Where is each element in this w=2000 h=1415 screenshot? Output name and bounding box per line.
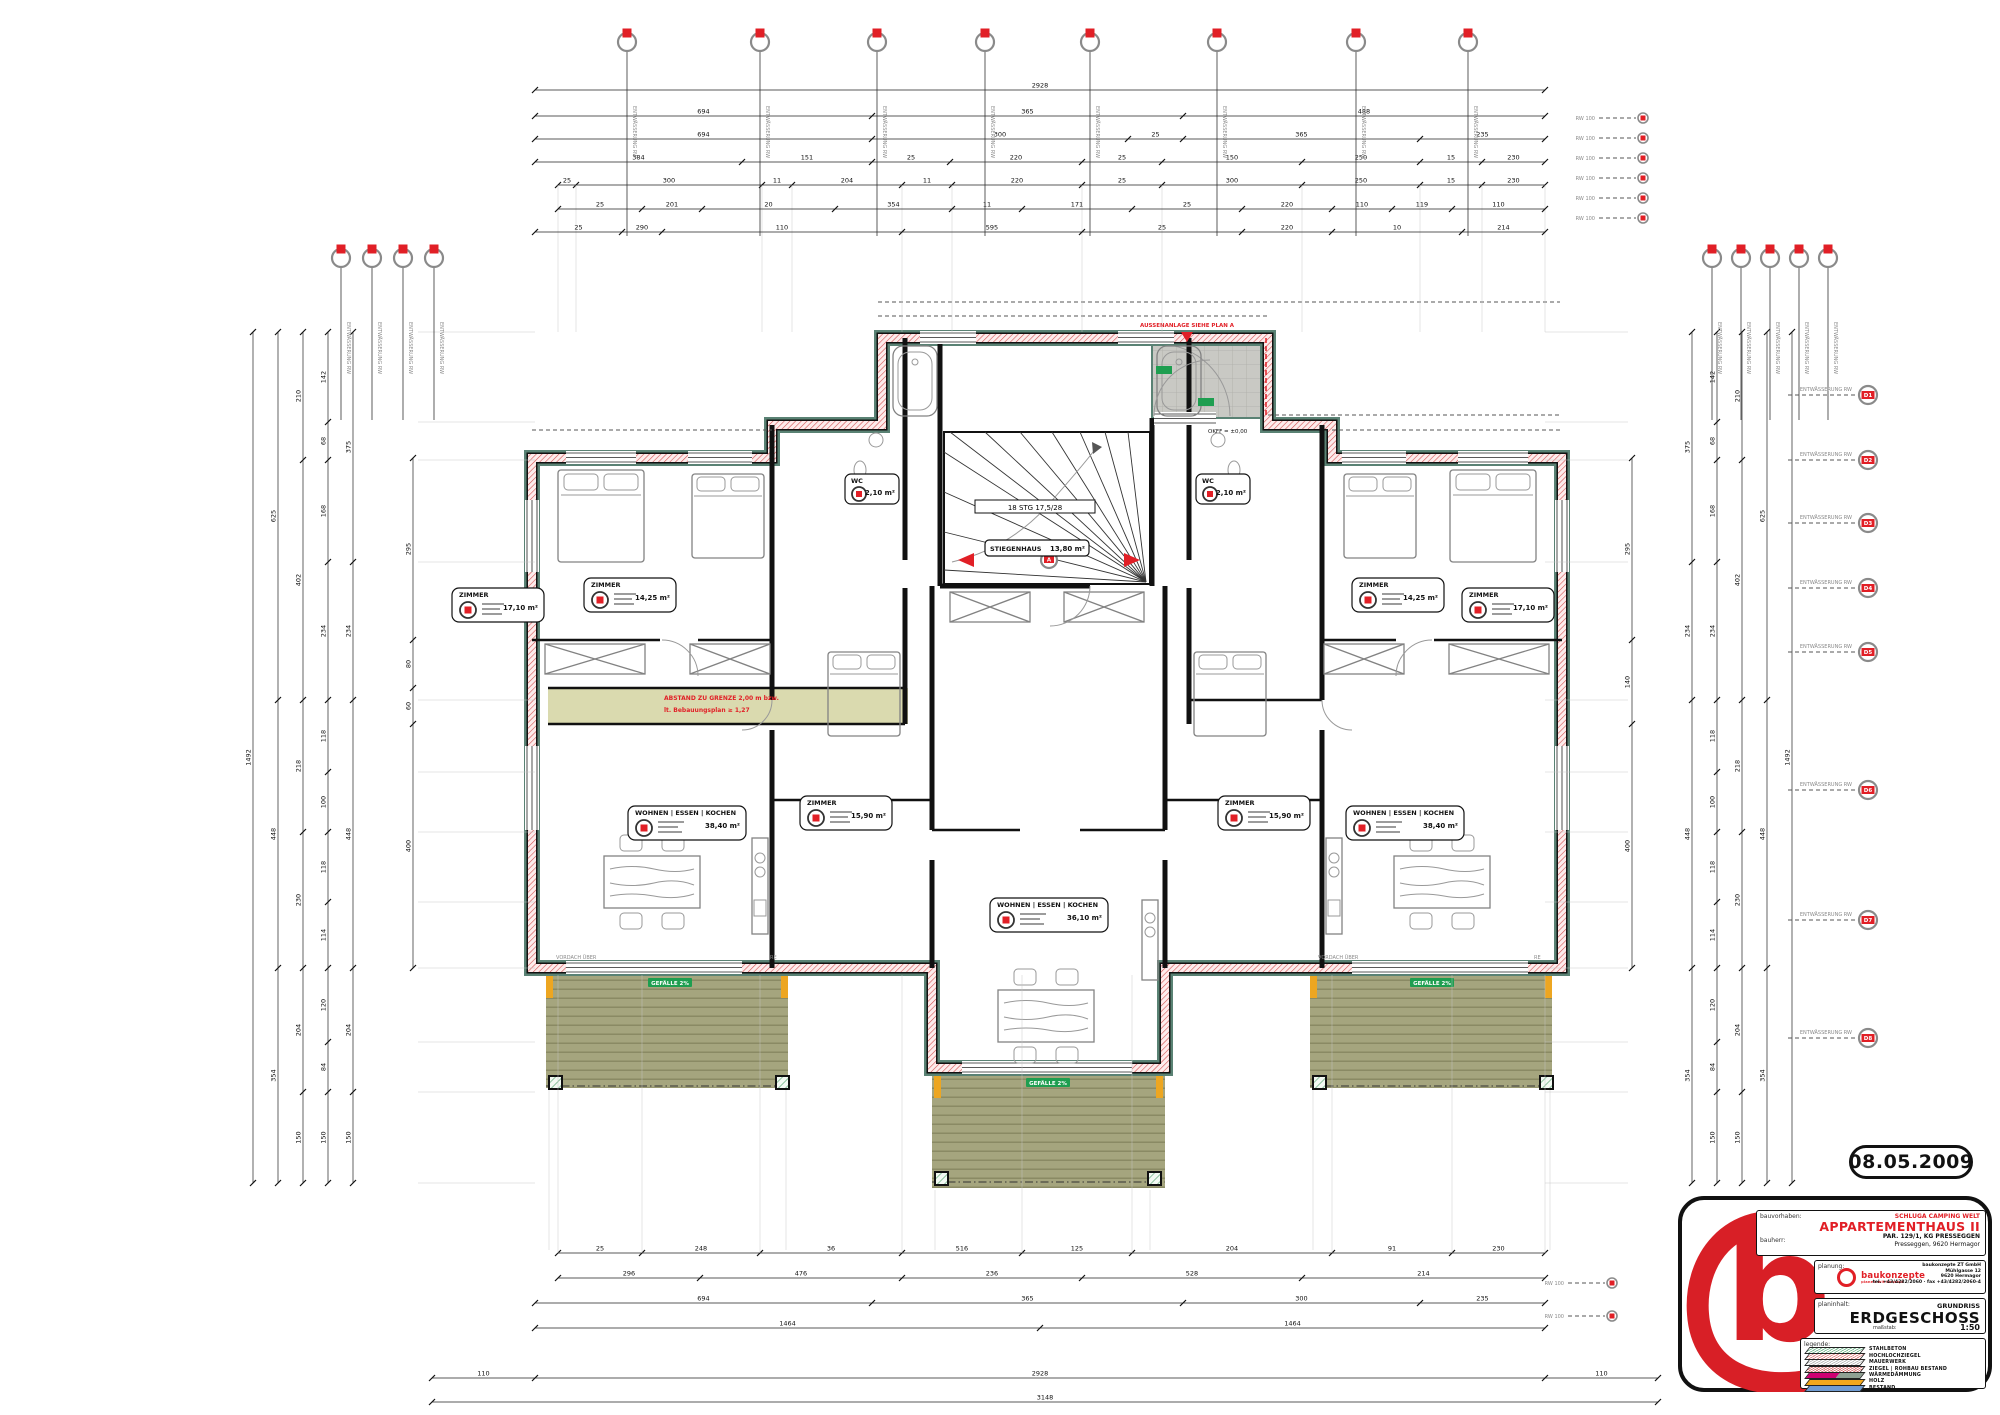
terrace-post: [549, 1076, 562, 1089]
svg-text:ENTWÄSSERUNG RW: ENTWÄSSERUNG RW: [345, 322, 352, 374]
svg-text:204: 204: [295, 1024, 303, 1036]
svg-text:15,90 m²: 15,90 m²: [851, 812, 886, 820]
legend-swatch-waermedaemmung: [1804, 1372, 1865, 1379]
svg-text:1492: 1492: [1784, 749, 1792, 766]
svg-text:2928: 2928: [1032, 82, 1049, 90]
svg-text:230: 230: [1507, 177, 1519, 185]
svg-text:400: 400: [405, 840, 413, 852]
svg-text:1464: 1464: [779, 1320, 796, 1328]
svg-text:ENTWÄSSERUNG RW: ENTWÄSSERUNG RW: [1221, 106, 1228, 158]
slope-chip: GEFÄLLE 2%: [1410, 978, 1454, 987]
highlight-zone: [548, 688, 908, 724]
svg-text:ZIMMER: ZIMMER: [1469, 591, 1499, 599]
svg-text:ENTWÄSSERUNG RW: ENTWÄSSERUNG RW: [881, 106, 888, 158]
svg-text:625: 625: [270, 510, 278, 522]
svg-text:296: 296: [623, 1270, 635, 1278]
svg-text:ENTWÄSSERUNG RW: ENTWÄSSERUNG RW: [1803, 322, 1810, 374]
svg-text:1492: 1492: [245, 749, 253, 766]
svg-text:100: 100: [320, 796, 328, 808]
svg-text:234: 234: [320, 625, 328, 637]
legend-row: HOLZ: [1807, 1379, 1981, 1385]
room-stamp: ZIMMER 17,10 m²: [452, 588, 544, 622]
svg-text:236: 236: [986, 1270, 998, 1278]
svg-text:118: 118: [1709, 730, 1717, 742]
vordach-label: VORDACH ÜBER: [556, 954, 597, 961]
legend-swatch-bestand: [1804, 1385, 1865, 1392]
svg-text:GEFÄLLE 2%: GEFÄLLE 2%: [651, 980, 689, 987]
svg-text:ZIMMER: ZIMMER: [591, 581, 621, 589]
svg-text:210: 210: [1734, 390, 1742, 402]
svg-text:295: 295: [405, 543, 413, 555]
firm-address: baukonzepte ZT GmbH Mühlgasse 12 9620 He…: [1873, 1263, 1981, 1285]
svg-text:ENTWÄSSERUNG RW: ENTWÄSSERUNG RW: [1800, 386, 1852, 393]
svg-text:295: 295: [1624, 543, 1632, 555]
svg-text:151: 151: [801, 154, 813, 162]
svg-text:110: 110: [1492, 201, 1504, 209]
svg-text:230: 230: [1507, 154, 1519, 162]
legend-row: WÄRMEDÄMMUNG: [1807, 1373, 1981, 1379]
svg-text:110: 110: [1595, 1370, 1607, 1378]
stair-run-label: 18 STG 17,5/28: [1008, 504, 1062, 512]
svg-text:14,25 m²: 14,25 m²: [1403, 594, 1438, 602]
svg-text:365: 365: [1295, 131, 1307, 139]
bauvorhaben-label: bauvorhaben:: [1760, 1213, 1802, 1220]
svg-text:204: 204: [1226, 1245, 1238, 1253]
svg-text:694: 694: [697, 131, 709, 139]
svg-text:WOHNEN | ESSEN | KOCHEN: WOHNEN | ESSEN | KOCHEN: [635, 809, 736, 818]
svg-text:68: 68: [1709, 437, 1717, 445]
svg-text:375: 375: [1684, 441, 1692, 453]
svg-text:91: 91: [1388, 1245, 1396, 1253]
svg-text:25: 25: [1118, 154, 1126, 162]
svg-text:36: 36: [827, 1245, 835, 1253]
svg-text:528: 528: [1186, 1270, 1198, 1278]
terrace-post: [1540, 1076, 1553, 1089]
svg-text:119: 119: [1416, 201, 1428, 209]
svg-text:ENTWÄSSERUNG RW: ENTWÄSSERUNG RW: [438, 322, 445, 374]
svg-text:ZIMMER: ZIMMER: [807, 799, 837, 807]
svg-text:WC: WC: [1202, 477, 1214, 485]
stair-detail-marker: A: [1047, 558, 1052, 564]
svg-text:25: 25: [1151, 131, 1159, 139]
room-stamp: ZIMMER 17,10 m²: [1462, 588, 1554, 622]
svg-text:365: 365: [1021, 1295, 1033, 1303]
svg-text:354: 354: [1684, 1069, 1692, 1081]
staircase: 18 STG 17,5/28 A: [944, 432, 1150, 584]
svg-text:17,10 m²: 17,10 m²: [503, 604, 538, 612]
re-label: RE: [1534, 955, 1541, 961]
svg-text:11: 11: [923, 177, 931, 185]
svg-text:ENTWÄSSERUNG RW: ENTWÄSSERUNG RW: [631, 106, 638, 158]
svg-text:D8: D8: [1864, 1036, 1873, 1042]
svg-text:ENTWÄSSERUNG RW: ENTWÄSSERUNG RW: [1800, 781, 1852, 788]
terrace-post: [935, 1172, 948, 1185]
svg-text:15,90 m²: 15,90 m²: [1269, 812, 1304, 820]
svg-text:11: 11: [983, 201, 991, 209]
scale-value: 1:50: [1960, 1323, 1980, 1332]
room-stamp: WC 2,10 m²: [845, 474, 899, 504]
svg-text:218: 218: [295, 760, 303, 772]
terrace-post: [1313, 1076, 1326, 1089]
svg-text:110: 110: [1356, 201, 1368, 209]
svg-text:448: 448: [345, 828, 353, 840]
svg-text:D6: D6: [1864, 788, 1873, 794]
svg-text:235: 235: [1476, 1295, 1488, 1303]
svg-text:1464: 1464: [1284, 1320, 1301, 1328]
svg-text:RW 100: RW 100: [1576, 176, 1595, 182]
svg-text:D4: D4: [1864, 586, 1873, 592]
level-mark: OKFF = ±0,00: [1208, 429, 1248, 435]
svg-text:214: 214: [1417, 1270, 1429, 1278]
svg-text:25: 25: [596, 201, 604, 209]
svg-text:118: 118: [320, 861, 328, 873]
svg-text:168: 168: [320, 505, 328, 517]
svg-text:2928: 2928: [1032, 1370, 1049, 1378]
svg-text:230: 230: [295, 894, 303, 906]
svg-text:234: 234: [1684, 625, 1692, 637]
svg-text:300: 300: [1226, 177, 1238, 185]
svg-text:118: 118: [320, 730, 328, 742]
svg-text:448: 448: [270, 828, 278, 840]
svg-text:GEFÄLLE 2%: GEFÄLLE 2%: [1029, 1080, 1067, 1087]
svg-text:125: 125: [1071, 1245, 1083, 1253]
svg-text:2,10 m²: 2,10 m²: [1216, 489, 1246, 497]
svg-text:402: 402: [295, 574, 303, 586]
svg-text:15: 15: [1447, 154, 1455, 162]
svg-text:120: 120: [320, 999, 328, 1011]
svg-text:38,40 m²: 38,40 m²: [1423, 822, 1458, 830]
svg-text:11: 11: [773, 177, 781, 185]
room-stamp: ZIMMER 15,90 m²: [800, 796, 892, 830]
svg-text:ENTWÄSSERUNG RW: ENTWÄSSERUNG RW: [1800, 451, 1852, 458]
svg-text:150: 150: [1734, 1131, 1742, 1143]
room-stamp: WOHNEN | ESSEN | KOCHEN 38,40 m²: [1346, 806, 1464, 840]
vordach-label: VORDACH ÜBER: [1318, 954, 1359, 961]
svg-text:220: 220: [1281, 224, 1293, 232]
svg-text:17,10 m²: 17,10 m²: [1513, 604, 1548, 612]
svg-text:248: 248: [695, 1245, 707, 1253]
svg-text:84: 84: [320, 1063, 328, 1071]
svg-text:230: 230: [1492, 1245, 1504, 1253]
svg-text:375: 375: [345, 441, 353, 453]
svg-text:204: 204: [345, 1024, 353, 1036]
svg-text:ENTWÄSSERUNG RW: ENTWÄSSERUNG RW: [989, 106, 996, 158]
svg-text:354: 354: [887, 201, 899, 209]
svg-text:448: 448: [1684, 828, 1692, 840]
dimension-chain-right: 1492625448354210402218230204150142681682…: [1545, 329, 1795, 1186]
svg-text:516: 516: [956, 1245, 968, 1253]
svg-text:448: 448: [1759, 828, 1767, 840]
room-stamp: WOHNEN | ESSEN | KOCHEN 38,40 m²: [628, 806, 746, 840]
svg-text:694: 694: [697, 1295, 709, 1303]
svg-text:ENTWÄSSERUNG RW: ENTWÄSSERUNG RW: [407, 322, 414, 374]
terrace-post: [776, 1076, 789, 1089]
project-box: bauvorhaben: bauherr: SCHLUGA CAMPING WE…: [1756, 1210, 1986, 1256]
svg-text:ENTWÄSSERUNG RW: ENTWÄSSERUNG RW: [1745, 322, 1752, 374]
re-label: RE: [770, 955, 777, 961]
svg-text:ZIMMER: ZIMMER: [459, 591, 489, 599]
svg-text:ENTWÄSSERUNG RW: ENTWÄSSERUNG RW: [764, 106, 771, 158]
svg-text:201: 201: [666, 201, 678, 209]
svg-text:120: 120: [1709, 999, 1717, 1011]
svg-text:20: 20: [764, 201, 772, 209]
svg-text:RW 100: RW 100: [1576, 216, 1595, 222]
setback-note-line2: lt. Bebauungsplan ≥ 1,27: [664, 707, 750, 714]
dimension-chain-left: 1492625448354210402218230204150142681682…: [245, 329, 536, 1186]
svg-text:354: 354: [270, 1069, 278, 1081]
svg-text:476: 476: [795, 1270, 807, 1278]
svg-text:290: 290: [636, 224, 648, 232]
legend-row: STAHLBETON: [1807, 1347, 1981, 1353]
svg-text:230: 230: [1734, 894, 1742, 906]
svg-text:WOHNEN | ESSEN | KOCHEN: WOHNEN | ESSEN | KOCHEN: [997, 901, 1098, 910]
project-parcel: PAR. 129/1, KG PRESSEGGEN: [1762, 1233, 1980, 1241]
floor-plan-sheet: 18 STG 17,5/28 A: [0, 0, 2000, 1415]
svg-text:ENTWÄSSERUNG RW: ENTWÄSSERUNG RW: [1800, 1029, 1852, 1036]
drawing-title-box: planinhalt: GRUNDRISS ERDGESCHOSS maßsta…: [1814, 1298, 1986, 1334]
svg-text:300: 300: [1295, 1295, 1307, 1303]
terrace-post: [1148, 1172, 1161, 1185]
svg-text:ENTWÄSSERUNG RW: ENTWÄSSERUNG RW: [1800, 643, 1852, 650]
svg-text:GEFÄLLE 2%: GEFÄLLE 2%: [1413, 980, 1451, 987]
svg-text:218: 218: [1734, 760, 1742, 772]
room-stamp: STIEGENHAUS 13,80 m²: [985, 540, 1089, 556]
svg-text:ENTWÄSSERUNG RW: ENTWÄSSERUNG RW: [1716, 322, 1723, 374]
svg-text:150: 150: [345, 1131, 353, 1143]
svg-text:114: 114: [1709, 929, 1717, 941]
svg-text:84: 84: [1709, 1063, 1717, 1071]
svg-text:ENTWÄSSERUNG RW: ENTWÄSSERUNG RW: [1800, 579, 1852, 586]
svg-text:ZIMMER: ZIMMER: [1225, 799, 1255, 807]
svg-text:WC: WC: [851, 477, 863, 485]
legend-row: BESTAND: [1807, 1385, 1981, 1391]
date-stamp: 08.05.2009: [1849, 1145, 1973, 1179]
date-text: 08.05.2009: [1848, 1151, 1973, 1173]
svg-text:D2: D2: [1864, 458, 1873, 464]
svg-text:13,80 m²: 13,80 m²: [1050, 545, 1085, 553]
title-block: b bauvorhaben: bauherr: SCHLUGA CAMPING …: [1678, 1196, 1992, 1392]
svg-text:234: 234: [1709, 625, 1717, 637]
svg-text:625: 625: [1759, 510, 1767, 522]
room-stamp: WC 2,10 m²: [1196, 474, 1250, 504]
svg-text:110: 110: [776, 224, 788, 232]
project-address: Presseggen, 9620 Hermagor: [1762, 1241, 1980, 1248]
svg-text:RW 100: RW 100: [1545, 1314, 1564, 1320]
svg-text:402: 402: [1734, 574, 1742, 586]
svg-text:300: 300: [663, 177, 675, 185]
svg-text:150: 150: [1709, 1131, 1717, 1143]
logo-circle-icon: [1837, 1268, 1856, 1287]
svg-text:400: 400: [1624, 840, 1632, 852]
svg-text:150: 150: [295, 1131, 303, 1143]
room-stamp: ZIMMER 14,25 m²: [584, 578, 676, 612]
svg-text:ENTWÄSSERUNG RW: ENTWÄSSERUNG RW: [1832, 322, 1839, 374]
svg-text:140: 140: [1624, 676, 1632, 688]
svg-text:694: 694: [697, 108, 709, 116]
svg-text:25: 25: [563, 177, 571, 185]
svg-text:595: 595: [986, 224, 998, 232]
svg-text:110: 110: [477, 1370, 489, 1378]
project-title: APPARTEMENTHAUS II: [1762, 1220, 1980, 1233]
detail-markers: ENTWÄSSERUNG RWD1ENTWÄSSERUNG RWD2ENTWÄS…: [1788, 386, 1877, 1047]
svg-text:204: 204: [841, 177, 853, 185]
svg-text:214: 214: [1497, 224, 1509, 232]
svg-text:14,25 m²: 14,25 m²: [635, 594, 670, 602]
svg-text:168: 168: [1709, 505, 1717, 517]
room-stamp: ZIMMER 14,25 m²: [1352, 578, 1444, 612]
svg-text:ENTWÄSSERUNG RW: ENTWÄSSERUNG RW: [1774, 322, 1781, 374]
svg-text:25: 25: [596, 1245, 604, 1253]
svg-text:RW 100: RW 100: [1576, 116, 1595, 122]
svg-text:15: 15: [1447, 177, 1455, 185]
svg-text:220: 220: [1010, 154, 1022, 162]
svg-text:ENTWÄSSERUNG RW: ENTWÄSSERUNG RW: [1360, 106, 1367, 158]
svg-text:38,40 m²: 38,40 m²: [705, 822, 740, 830]
svg-text:68: 68: [320, 437, 328, 445]
svg-text:WOHNEN | ESSEN | KOCHEN: WOHNEN | ESSEN | KOCHEN: [1353, 809, 1454, 818]
legend-row: MAUERWERK: [1807, 1360, 1981, 1366]
svg-text:118: 118: [1709, 861, 1717, 873]
svg-text:36,10 m²: 36,10 m²: [1067, 914, 1102, 922]
svg-text:D1: D1: [1864, 393, 1873, 399]
svg-text:210: 210: [295, 390, 303, 402]
svg-text:60: 60: [405, 702, 413, 710]
svg-text:10: 10: [1393, 224, 1401, 232]
svg-text:ENTWÄSSERUNG RW: ENTWÄSSERUNG RW: [376, 322, 383, 374]
svg-text:80: 80: [405, 660, 413, 668]
legend-box: legende: STAHLBETON HOCHLOCHZIEGEL MAUER…: [1800, 1338, 1986, 1389]
svg-text:171: 171: [1071, 201, 1083, 209]
svg-text:25: 25: [1118, 177, 1126, 185]
svg-text:3148: 3148: [1037, 1394, 1054, 1402]
svg-text:100: 100: [1709, 796, 1717, 808]
svg-text:234: 234: [345, 625, 353, 637]
porch-note: AUSSENANLAGE SIEHE PLAN A: [1140, 323, 1235, 329]
bauherr-label: bauherr:: [1760, 1237, 1786, 1244]
room-stamp: ZIMMER 15,90 m²: [1218, 796, 1310, 830]
slope-chip: GEFÄLLE 2%: [648, 978, 692, 987]
svg-text:D7: D7: [1864, 918, 1873, 924]
slope-chip: GEFÄLLE 2%: [1026, 1078, 1070, 1087]
svg-text:ZIMMER: ZIMMER: [1359, 581, 1389, 589]
svg-text:ENTWÄSSERUNG RW: ENTWÄSSERUNG RW: [1472, 106, 1479, 158]
svg-text:ENTWÄSSERUNG RW: ENTWÄSSERUNG RW: [1094, 106, 1101, 158]
svg-text:142: 142: [1709, 371, 1717, 383]
svg-text:25: 25: [907, 154, 915, 162]
svg-text:220: 220: [1281, 201, 1293, 209]
svg-text:25: 25: [574, 224, 582, 232]
svg-text:RW 100: RW 100: [1576, 156, 1595, 162]
svg-text:354: 354: [1759, 1069, 1767, 1081]
setback-note-line1: ABSTAND ZU GRENZE 2,00 m bzw.: [664, 695, 779, 702]
svg-text:25: 25: [1183, 201, 1191, 209]
planinhalt-label: planinhalt:: [1818, 1301, 1850, 1308]
svg-text:D5: D5: [1864, 650, 1873, 656]
svg-text:RW 100: RW 100: [1545, 1281, 1564, 1287]
svg-text:ENTWÄSSERUNG RW: ENTWÄSSERUNG RW: [1800, 514, 1852, 521]
svg-text:STIEGENHAUS: STIEGENHAUS: [990, 545, 1042, 553]
svg-text:250: 250: [1355, 177, 1367, 185]
svg-text:365: 365: [1021, 108, 1033, 116]
dimension-chain-top: 2928694365488694300253652353841512522025…: [532, 82, 1548, 333]
svg-text:D3: D3: [1864, 521, 1873, 527]
svg-text:220: 220: [1011, 177, 1023, 185]
planner-box: planung: baukonzepte planen mit konzept …: [1814, 1260, 1986, 1294]
svg-text:RW 100: RW 100: [1576, 136, 1595, 142]
legend-swatch-mauerwerk: [1804, 1359, 1865, 1366]
room-stamp: WOHNEN | ESSEN | KOCHEN 36,10 m²: [990, 898, 1108, 932]
svg-text:142: 142: [320, 371, 328, 383]
svg-text:ENTWÄSSERUNG RW: ENTWÄSSERUNG RW: [1800, 911, 1852, 918]
svg-text:150: 150: [320, 1131, 328, 1143]
svg-text:114: 114: [320, 929, 328, 941]
svg-text:2,10 m²: 2,10 m²: [865, 489, 895, 497]
svg-text:204: 204: [1734, 1024, 1742, 1036]
svg-text:RW 100: RW 100: [1576, 196, 1595, 202]
massstab-label: maßstab:: [1873, 1325, 1897, 1331]
svg-text:25: 25: [1158, 224, 1166, 232]
